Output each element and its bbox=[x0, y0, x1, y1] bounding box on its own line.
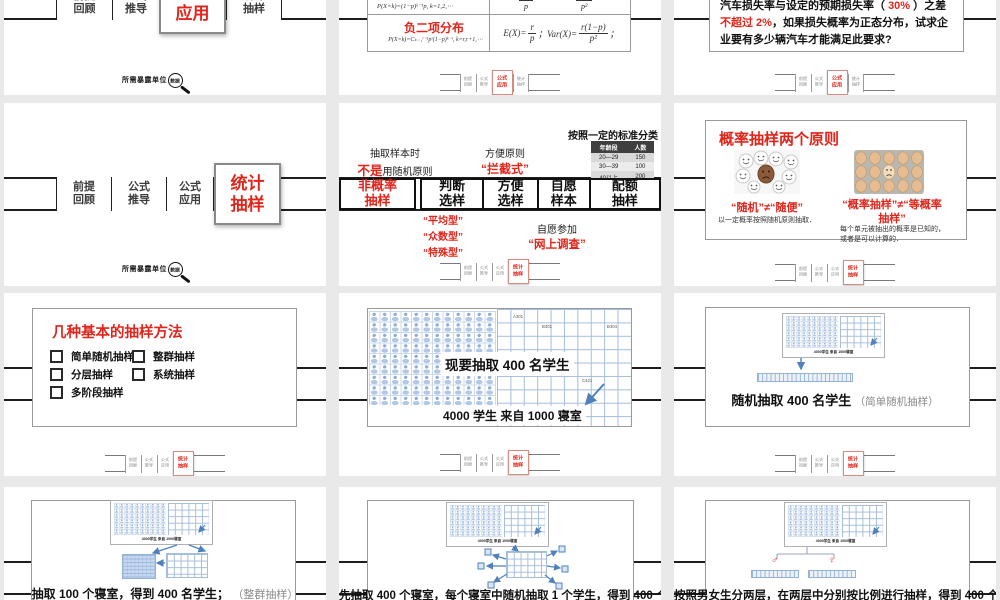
sampled-students-strip bbox=[757, 373, 853, 382]
slide-title: 概率抽样两个原则 bbox=[719, 128, 839, 149]
table-divider bbox=[367, 14, 631, 15]
slide-thumb-statistical-sampling-divider[interactable]: 前提 回顾 公式 推导 公式 应用 统计 抽样 所需暴露单位 数据 bbox=[4, 103, 326, 286]
mini-tab-formula-derivation: 公式 推导 bbox=[476, 74, 492, 92]
checkbox-icon bbox=[50, 368, 63, 381]
slide-thumb-basic-sampling-methods[interactable]: 几种基本的抽样方法 简单随机抽样 分层抽样 多阶段抽样 整群抽样 系统抽样 前提… bbox=[4, 293, 326, 476]
caption-method-name: （整群抽样） bbox=[232, 589, 298, 600]
cell-convenience-sampling: 方便 选样 bbox=[482, 180, 537, 208]
mini-tab-formula-derivation: 公式 推导 bbox=[811, 455, 827, 473]
mini-nav: 前提 回顾 公式 推导 公式 应用 统计 抽样 bbox=[105, 449, 225, 476]
punctuation: ； bbox=[610, 27, 619, 40]
smiley-eggs-image bbox=[734, 150, 800, 194]
selection-arrow-icon bbox=[195, 524, 207, 536]
students-grid-mini bbox=[788, 505, 840, 537]
col-header-count: 人数 bbox=[626, 141, 654, 153]
table-row: 20—29150 bbox=[591, 153, 654, 162]
mini-tab-formula-derivation: 公式 推导 bbox=[811, 74, 827, 92]
brand-logo: 所需暴露单位 数据 bbox=[122, 261, 192, 277]
caption-bold: 抽取 100 个寝室，得到 400 名学生； bbox=[32, 587, 229, 600]
mini-tab-statistical-sampling: 统计 抽样 bbox=[848, 74, 864, 92]
dorm-diagram-mini: 4000学生 来自 1000寝室 bbox=[784, 502, 887, 547]
mini-tab-formula-derivation: 公式 推导 bbox=[476, 263, 492, 281]
variance-label: ；Var(X)= bbox=[538, 27, 577, 40]
mini-tab-premise-review: 前提 回顾 bbox=[460, 263, 476, 281]
students-grid-mini bbox=[450, 505, 502, 537]
brand-logo: 所需暴露单位 数据 bbox=[122, 72, 192, 88]
mini-tab-statistical-sampling-active: 统计 抽样 bbox=[843, 451, 864, 476]
mini-nav: 前提 回顾 公式 推导 公式 应用 统计 抽样 bbox=[775, 68, 895, 95]
radiating-arrows bbox=[469, 543, 573, 593]
negative-binomial-pmf: P(X=k)=Cₖ₋₁ʳ⁻¹pʳ(1−p)ᵏ⁻ʳ, k=r,r+1,⋯ bbox=[373, 36, 498, 43]
fraction-denominator: p bbox=[519, 0, 533, 11]
male-symbol: ♂ bbox=[771, 555, 779, 566]
tab-formula-application-active: 公式 应用 bbox=[159, 0, 226, 34]
type-average: “平均型” bbox=[423, 214, 473, 230]
branch-connector bbox=[749, 545, 869, 569]
checkbox-simple-random: 简单随机抽样 bbox=[50, 349, 134, 364]
note-rest: 用随机原则 bbox=[383, 167, 433, 178]
mini-tab-premise-review: 前提 回顾 bbox=[460, 454, 476, 472]
method-caption: 随机抽取 400 名学生 （简单随机抽样） bbox=[674, 390, 996, 409]
note-convenience: 方便原则 “拦截式” bbox=[469, 145, 541, 177]
caption-4000-students: 4000 学生 来自 1000 寝室 bbox=[439, 406, 586, 425]
classification-table: 年龄段 人数 20—29150 30—39100 40以上200 bbox=[591, 141, 654, 183]
mini-tab-premise-review: 前提 回顾 bbox=[125, 455, 141, 473]
dorm-diagram-mini: 4000学生 来自 1000寝室 bbox=[782, 313, 885, 358]
note-line: 方便原则 bbox=[469, 145, 541, 160]
mini-tab-statistical-sampling-active: 统计 抽样 bbox=[508, 450, 529, 475]
table-row: 30—39100 bbox=[591, 162, 654, 171]
left-subtext: 以一定概率按照随机原则抽取． bbox=[716, 215, 818, 225]
magnifier-handle bbox=[180, 85, 191, 94]
magnifier-handle bbox=[180, 274, 191, 283]
mini-tab-formula-application-active: 公式 应用 bbox=[827, 70, 848, 95]
mini-tab-statistical-sampling: 统计 抽样 bbox=[513, 74, 529, 92]
mini-nav: 前提 回顾 公式 推导 公式 应用 统计 抽样 bbox=[775, 449, 895, 476]
slide-thumb-simple-random-sampling[interactable]: 4000学生 来自 1000寝室 随机抽取 400 名学生 （简单随机抽样） 前… bbox=[674, 293, 996, 476]
tab-premise-review: 前提 回顾 bbox=[56, 0, 112, 20]
type-mode: “众数型” bbox=[423, 230, 473, 246]
nonprobability-sampling-box: 非概率 抽样 bbox=[339, 178, 416, 210]
method-cells-row: 判断 选样 方便 选样 自愿 样本 配额 抽样 bbox=[420, 178, 661, 210]
male-stratum-strip bbox=[751, 570, 799, 578]
slide-thumb-negative-binomial[interactable]: P(X=k)=(1−p)ᵏ⁻¹p, k=1,2,⋯ p p² 负二项分布 P(X… bbox=[339, 0, 661, 95]
selected-rooms-grid-empty bbox=[166, 553, 208, 578]
right-subtext: 每个单元被抽出的概率是已知的，或者是可以计算的． bbox=[840, 225, 948, 245]
selection-arrow-icon bbox=[867, 337, 879, 349]
slide-thumb-dorm-population[interactable]: A301 B301 B304 C401 C421 现要抽取 400 名学生 40… bbox=[339, 293, 661, 476]
mini-tab-premise-review: 前提 回顾 bbox=[795, 74, 811, 92]
mini-tab-formula-derivation: 公式 推导 bbox=[141, 455, 157, 473]
checkbox-icon bbox=[50, 386, 63, 399]
cell-judgment-sampling: 判断 选样 bbox=[422, 180, 482, 208]
negative-binomial-title: 负二项分布 bbox=[389, 19, 479, 36]
cell-quota-sampling: 配额 抽样 bbox=[589, 180, 659, 208]
slide-title: 几种基本的抽样方法 bbox=[52, 321, 183, 342]
right-caption: “概率抽样”≠“等概率抽样” bbox=[842, 199, 942, 227]
mini-nav: 前提 回顾 公式 推导 公式 应用 统计 抽样 bbox=[775, 258, 895, 286]
checkbox-icon bbox=[132, 350, 145, 363]
mini-tab-formula-application: 公式 应用 bbox=[157, 455, 173, 473]
judgment-types-list: “平均型” “众数型” “特殊型” bbox=[423, 214, 473, 262]
mini-tab-formula-application: 公式 应用 bbox=[827, 455, 843, 473]
mini-tab-formula-application: 公式 应用 bbox=[827, 264, 843, 282]
tab-formula-derivation: 公式 推导 bbox=[112, 0, 159, 20]
checkbox-systematic: 系统抽样 bbox=[132, 367, 195, 382]
text-segment: ）之差 bbox=[910, 0, 946, 12]
room-label: B304 bbox=[607, 325, 617, 329]
mini-tab-formula-application: 公式 应用 bbox=[492, 263, 508, 281]
mini-tab-premise-review: 前提 回顾 bbox=[795, 455, 811, 473]
dorm-diagram-mini: 4000学生 来自 1000寝室 bbox=[446, 502, 549, 547]
slide-thumb-probability-principles[interactable]: 概率抽样两个原则 bbox=[674, 103, 996, 286]
note-not-random: 抽取样本时 不是用随机原则 bbox=[339, 145, 451, 179]
female-symbol: ♀ bbox=[828, 555, 836, 566]
tab-statistical-sampling: 统计 抽样 bbox=[226, 0, 282, 20]
mini-nav: 前提 回顾 公式 推导 公式 应用 统计 抽样 bbox=[440, 448, 560, 476]
mini-nav: 前提 回顾 公式 推导 公式 应用 统计 抽样 bbox=[440, 68, 560, 95]
mini-tab-formula-application-active: 公式 应用 bbox=[492, 70, 513, 95]
selection-arrow-icon bbox=[577, 381, 607, 409]
cell-voluntary-sample: 自愿 样本 bbox=[537, 180, 589, 208]
caption-method-name: （简单随机抽样） bbox=[855, 396, 939, 408]
tab-formula-derivation: 公式 推导 bbox=[111, 177, 166, 211]
dorm-caption-mini: 4000学生 来自 1000寝室 bbox=[805, 538, 866, 543]
negative-binomial-stats: E(X)=rp；Var(X)=r(1−p)p²； bbox=[491, 16, 631, 50]
method-caption: 抽取 100 个寝室，得到 400 名学生； （整群抽样） bbox=[4, 585, 326, 600]
slide-thumb-car-loss-problem[interactable]: 汽车损失率与设定的预期损失率（ 30% ）之差不超过 2%，如果损失概率为正态分… bbox=[674, 0, 996, 95]
checkbox-stratified: 分层抽样 bbox=[50, 367, 113, 382]
mini-tab-statistical-sampling-active: 统计 抽样 bbox=[173, 451, 194, 476]
fraction-denominator: p² bbox=[576, 0, 592, 11]
students-grid-mini bbox=[114, 503, 166, 535]
mini-tab-formula-derivation: 公式 推导 bbox=[811, 264, 827, 282]
tab-formula-application: 公式 应用 bbox=[166, 177, 214, 211]
problem-text: 汽车损失率与设定的预期损失率（ 30% ）之差不超过 2%，如果损失概率为正态分… bbox=[720, 0, 953, 49]
slide-thumb-nonprobability-sampling[interactable]: 抽取样本时 不是用随机原则 方便原则 “拦截式” 按照一定的标准分类 年龄段 人… bbox=[339, 103, 661, 286]
checkbox-icon bbox=[50, 350, 63, 363]
mini-tab-formula-application: 公式 应用 bbox=[492, 454, 508, 472]
tab-premise-review: 前提 回顾 bbox=[56, 177, 111, 211]
mini-tab-formula-derivation: 公式 推导 bbox=[476, 454, 492, 472]
dorm-caption-mini: 4000学生 来自 1000寝室 bbox=[803, 349, 864, 354]
overlay-text-draw-400: 现要抽取 400 名学生 bbox=[441, 352, 574, 376]
slide-thumb-two-stage-sampling[interactable]: 4000学生 来自 1000寝室 先抽取 400 个寝室，每个寝室中随机抽取 1… bbox=[339, 487, 661, 600]
classification-title: 按照一定的标准分类 bbox=[565, 127, 661, 142]
text-segment: 汽车损失率与设定的预期损失率（ bbox=[720, 0, 888, 12]
col-header-age: 年龄段 bbox=[591, 141, 626, 153]
slide-thumb-cluster-sampling[interactable]: 4000学生 来自 1000寝室 抽取 100 个寝室，得到 400 名学生； … bbox=[4, 487, 326, 600]
female-stratum-strip bbox=[808, 570, 856, 578]
checkbox-multistage: 多阶段抽样 bbox=[50, 385, 124, 400]
checkbox-cluster: 整群抽样 bbox=[132, 349, 195, 364]
voluntary-note: 自愿参加 “网上调查” bbox=[517, 221, 597, 252]
room-label: A301 bbox=[513, 315, 523, 319]
note-line: 自愿参加 bbox=[517, 221, 597, 236]
slide-thumb-formula-application-divider[interactable]: 前提 回顾 公式 推导 公式 应用 统计 抽样 所需暴露单位 数据 bbox=[4, 0, 326, 95]
selection-arrow-icon bbox=[531, 526, 543, 538]
fraction: r(1−p)p² bbox=[579, 23, 608, 44]
mini-tab-statistical-sampling-active: 统计 抽样 bbox=[843, 260, 864, 285]
slide-sorter-page: 前提 回顾 公式 推导 公式 应用 统计 抽样 所需暴露单位 数据 P(X=k)… bbox=[0, 0, 1000, 600]
note-emphasis: “网上调查” bbox=[517, 236, 597, 252]
logo-text: 所需暴露单位 bbox=[122, 75, 167, 85]
students-grid-mini bbox=[786, 316, 838, 348]
mini-tab-premise-review: 前提 回顾 bbox=[460, 74, 476, 92]
geometric-pmf-formula: P(X=k)=(1−p)ᵏ⁻¹p, k=1,2,⋯ bbox=[377, 2, 453, 10]
left-caption: “随机”≠“随便” bbox=[714, 199, 820, 215]
room-label: B301 bbox=[542, 325, 552, 329]
caption-bold: 随机抽取 400 名学生 bbox=[731, 393, 851, 408]
fraction: rp bbox=[528, 23, 536, 44]
down-arrow-icon bbox=[794, 357, 808, 373]
tab-statistical-sampling-active: 统计 抽样 bbox=[214, 163, 281, 225]
mini-tab-premise-review: 前提 回顾 bbox=[795, 264, 811, 282]
expectation-label: E(X)= bbox=[503, 28, 526, 38]
note-line: 抽取样本时 bbox=[339, 145, 451, 160]
selection-arrow-icon bbox=[869, 526, 881, 538]
note-emphasis: “拦截式” bbox=[469, 160, 541, 177]
mini-tab-statistical-sampling-active: 统计 抽样 bbox=[508, 259, 529, 284]
highlight-not-exceed-2pct: 不超过 2% bbox=[720, 17, 772, 29]
logo-text: 所需暴露单位 bbox=[122, 264, 167, 274]
highlight-30pct: 30% bbox=[888, 0, 910, 12]
egg-carton-image bbox=[854, 150, 924, 194]
note-emphasis: 不是 bbox=[357, 164, 382, 178]
slide-thumb-stratified-sampling[interactable]: 4000学生 来自 1000寝室 ♂ ♀ 按照男女生分两层，在两层中分别按比例进… bbox=[674, 487, 996, 600]
table-divider bbox=[489, 0, 490, 52]
selected-rooms-grid-filled bbox=[122, 554, 156, 579]
mini-nav: 前提 回顾 公式 推导 公式 应用 统计 抽样 bbox=[440, 257, 560, 285]
checkbox-icon bbox=[132, 368, 145, 381]
